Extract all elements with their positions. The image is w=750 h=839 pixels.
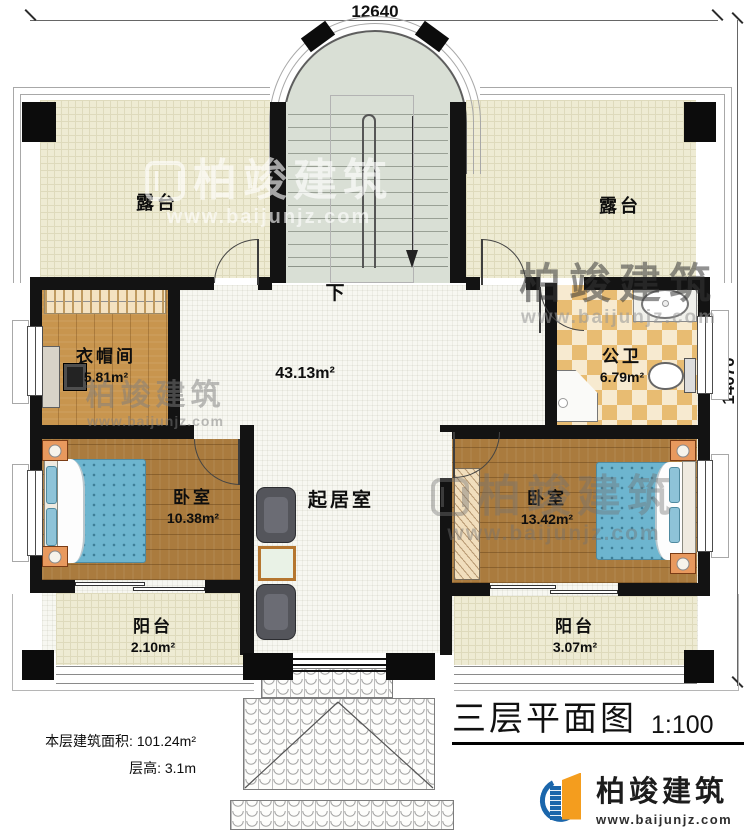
- title-scale: 1:100: [651, 711, 714, 740]
- window: [27, 470, 43, 556]
- wall: [466, 277, 480, 290]
- bed-pillow: [669, 467, 680, 503]
- balcony-outline: [738, 594, 739, 691]
- porch-window: [293, 658, 386, 672]
- hanger-rack: [44, 288, 166, 314]
- lamp-icon: [49, 550, 62, 563]
- wall: [526, 277, 540, 290]
- balcony-railing: [56, 683, 254, 684]
- wardrobe: [454, 468, 480, 580]
- stair-down-label: 下: [317, 282, 353, 307]
- terrace-left-label: 露台: [77, 192, 237, 215]
- living-area-label: 43.13m²: [225, 364, 385, 385]
- wall: [440, 478, 452, 655]
- balcony-railing: [454, 674, 697, 675]
- balcony-railing: [454, 683, 697, 684]
- living-room-label: 起居室: [261, 489, 421, 514]
- door-leaf: [238, 439, 240, 485]
- armchair-seat: [264, 594, 288, 630]
- nightstand: [670, 440, 696, 461]
- floor-info: 本层建筑面积: 101.24m² 层高: 3.1m: [24, 728, 196, 781]
- bedroom-left-label: 卧室 10.38m²: [133, 487, 253, 527]
- roof-hip-lines: [243, 698, 435, 790]
- wall: [258, 277, 272, 290]
- bed-pillow: [46, 466, 57, 504]
- corner-pillar: [684, 102, 716, 142]
- window-bar: [705, 317, 706, 393]
- corner-pillar: [22, 102, 56, 142]
- bed-headboard: [682, 461, 696, 561]
- bedroom-right-label: 卧室 13.42m²: [487, 488, 607, 528]
- logo-building-blue: [550, 786, 561, 820]
- window-sill: [711, 454, 729, 558]
- floor-height-value: 3.1m: [165, 760, 196, 776]
- window: [27, 326, 43, 396]
- balcony-left-label: 阳台 2.10m²: [93, 616, 213, 656]
- nightstand: [42, 546, 68, 567]
- window-bar: [35, 327, 36, 395]
- corner-pillar: [684, 650, 714, 683]
- armchair: [256, 584, 296, 640]
- sliding-door: [75, 582, 145, 586]
- nightstand: [670, 553, 696, 574]
- wall: [270, 102, 286, 283]
- window-bar: [705, 461, 706, 551]
- balcony-railing: [56, 674, 254, 675]
- balcony-outline: [12, 594, 13, 691]
- stair-handrail: [362, 114, 376, 268]
- page-title: 三层平面图: [452, 691, 637, 740]
- logo-building-orange: [562, 773, 581, 820]
- door-leaf: [453, 432, 455, 478]
- title-block: 三层平面图 1:100: [452, 700, 744, 745]
- stair-direction-line: [412, 116, 413, 250]
- shower-drain: [558, 398, 568, 408]
- floor-plan: 12640 14070 露台 露台 下 衣帽间 5.81m²: [0, 0, 750, 839]
- floor-height-line: 层高: 3.1m: [24, 755, 196, 782]
- wall: [205, 580, 254, 593]
- cloakroom-label: 衣帽间 5.81m²: [44, 346, 168, 386]
- window-sill: [711, 310, 729, 400]
- floor-area-value: 101.24m²: [137, 733, 196, 749]
- lamp-icon: [49, 444, 62, 457]
- bathroom-label: 公卫 6.79m²: [557, 346, 687, 386]
- window-bar: [35, 471, 36, 555]
- wall: [30, 425, 194, 439]
- path-tiles: [230, 800, 454, 830]
- window: [697, 460, 713, 552]
- bed-pillow: [669, 507, 680, 543]
- lamp-icon: [677, 444, 690, 457]
- door-leaf: [481, 239, 483, 285]
- sliding-door: [133, 587, 205, 591]
- floor-area-line: 本层建筑面积: 101.24m²: [24, 728, 196, 755]
- terrace-right-label: 露台: [540, 195, 700, 218]
- porch-wall-block: [386, 653, 435, 680]
- sliding-door: [550, 590, 618, 594]
- door-leaf: [539, 287, 541, 333]
- brand-name: 柏竣建筑: [596, 768, 732, 810]
- bed-pillow: [46, 508, 57, 546]
- window: [697, 316, 713, 394]
- wall: [30, 580, 75, 593]
- wall: [240, 425, 254, 655]
- sink-drain: [662, 300, 669, 307]
- wall: [618, 583, 710, 596]
- wall: [584, 277, 710, 290]
- wall: [440, 583, 490, 596]
- brand-text: 柏竣建筑 www.baijunjz.com: [596, 768, 732, 827]
- lamp-icon: [677, 557, 690, 570]
- brand-block: 柏竣建筑 www.baijunjz.com: [540, 768, 732, 827]
- stair-down-arrow-icon: [406, 250, 418, 268]
- wall: [440, 425, 452, 432]
- sliding-door: [490, 585, 556, 589]
- porch-wall-block: [243, 653, 293, 680]
- nightstand: [42, 440, 68, 461]
- floor-area-label: 本层建筑面积:: [45, 733, 133, 749]
- door-leaf: [257, 239, 259, 285]
- floor-height-label: 层高:: [129, 760, 161, 776]
- wall: [168, 283, 180, 437]
- balcony-outline: [12, 690, 254, 691]
- balcony-railing: [454, 666, 697, 667]
- brand-site: www.baijunjz.com: [596, 812, 732, 827]
- balcony-right-label: 阳台 3.07m²: [515, 616, 635, 656]
- wall: [450, 102, 466, 283]
- coffee-table: [258, 546, 296, 581]
- corner-pillar: [22, 650, 54, 680]
- brand-logo-icon: [540, 770, 588, 826]
- wall: [30, 277, 214, 290]
- balcony-railing: [56, 666, 254, 667]
